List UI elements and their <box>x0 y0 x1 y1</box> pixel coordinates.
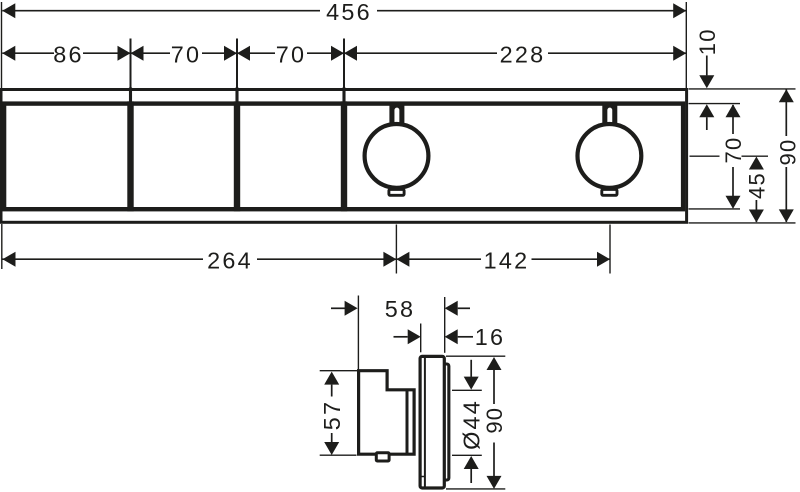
svg-text:57: 57 <box>319 400 345 430</box>
svg-text:86: 86 <box>53 42 83 68</box>
svg-text:70: 70 <box>171 42 201 68</box>
svg-text:90: 90 <box>775 139 800 166</box>
svg-text:70: 70 <box>721 137 746 164</box>
svg-text:45: 45 <box>744 172 769 199</box>
svg-text:16: 16 <box>475 324 505 350</box>
svg-text:70: 70 <box>276 42 306 68</box>
svg-text:456: 456 <box>326 0 372 25</box>
svg-text:228: 228 <box>500 42 546 68</box>
svg-text:142: 142 <box>484 248 530 274</box>
svg-text:10: 10 <box>695 28 720 55</box>
svg-text:Ø44: Ø44 <box>459 399 485 450</box>
svg-text:90: 90 <box>482 407 507 434</box>
svg-text:264: 264 <box>207 248 253 274</box>
svg-text:58: 58 <box>385 296 415 322</box>
